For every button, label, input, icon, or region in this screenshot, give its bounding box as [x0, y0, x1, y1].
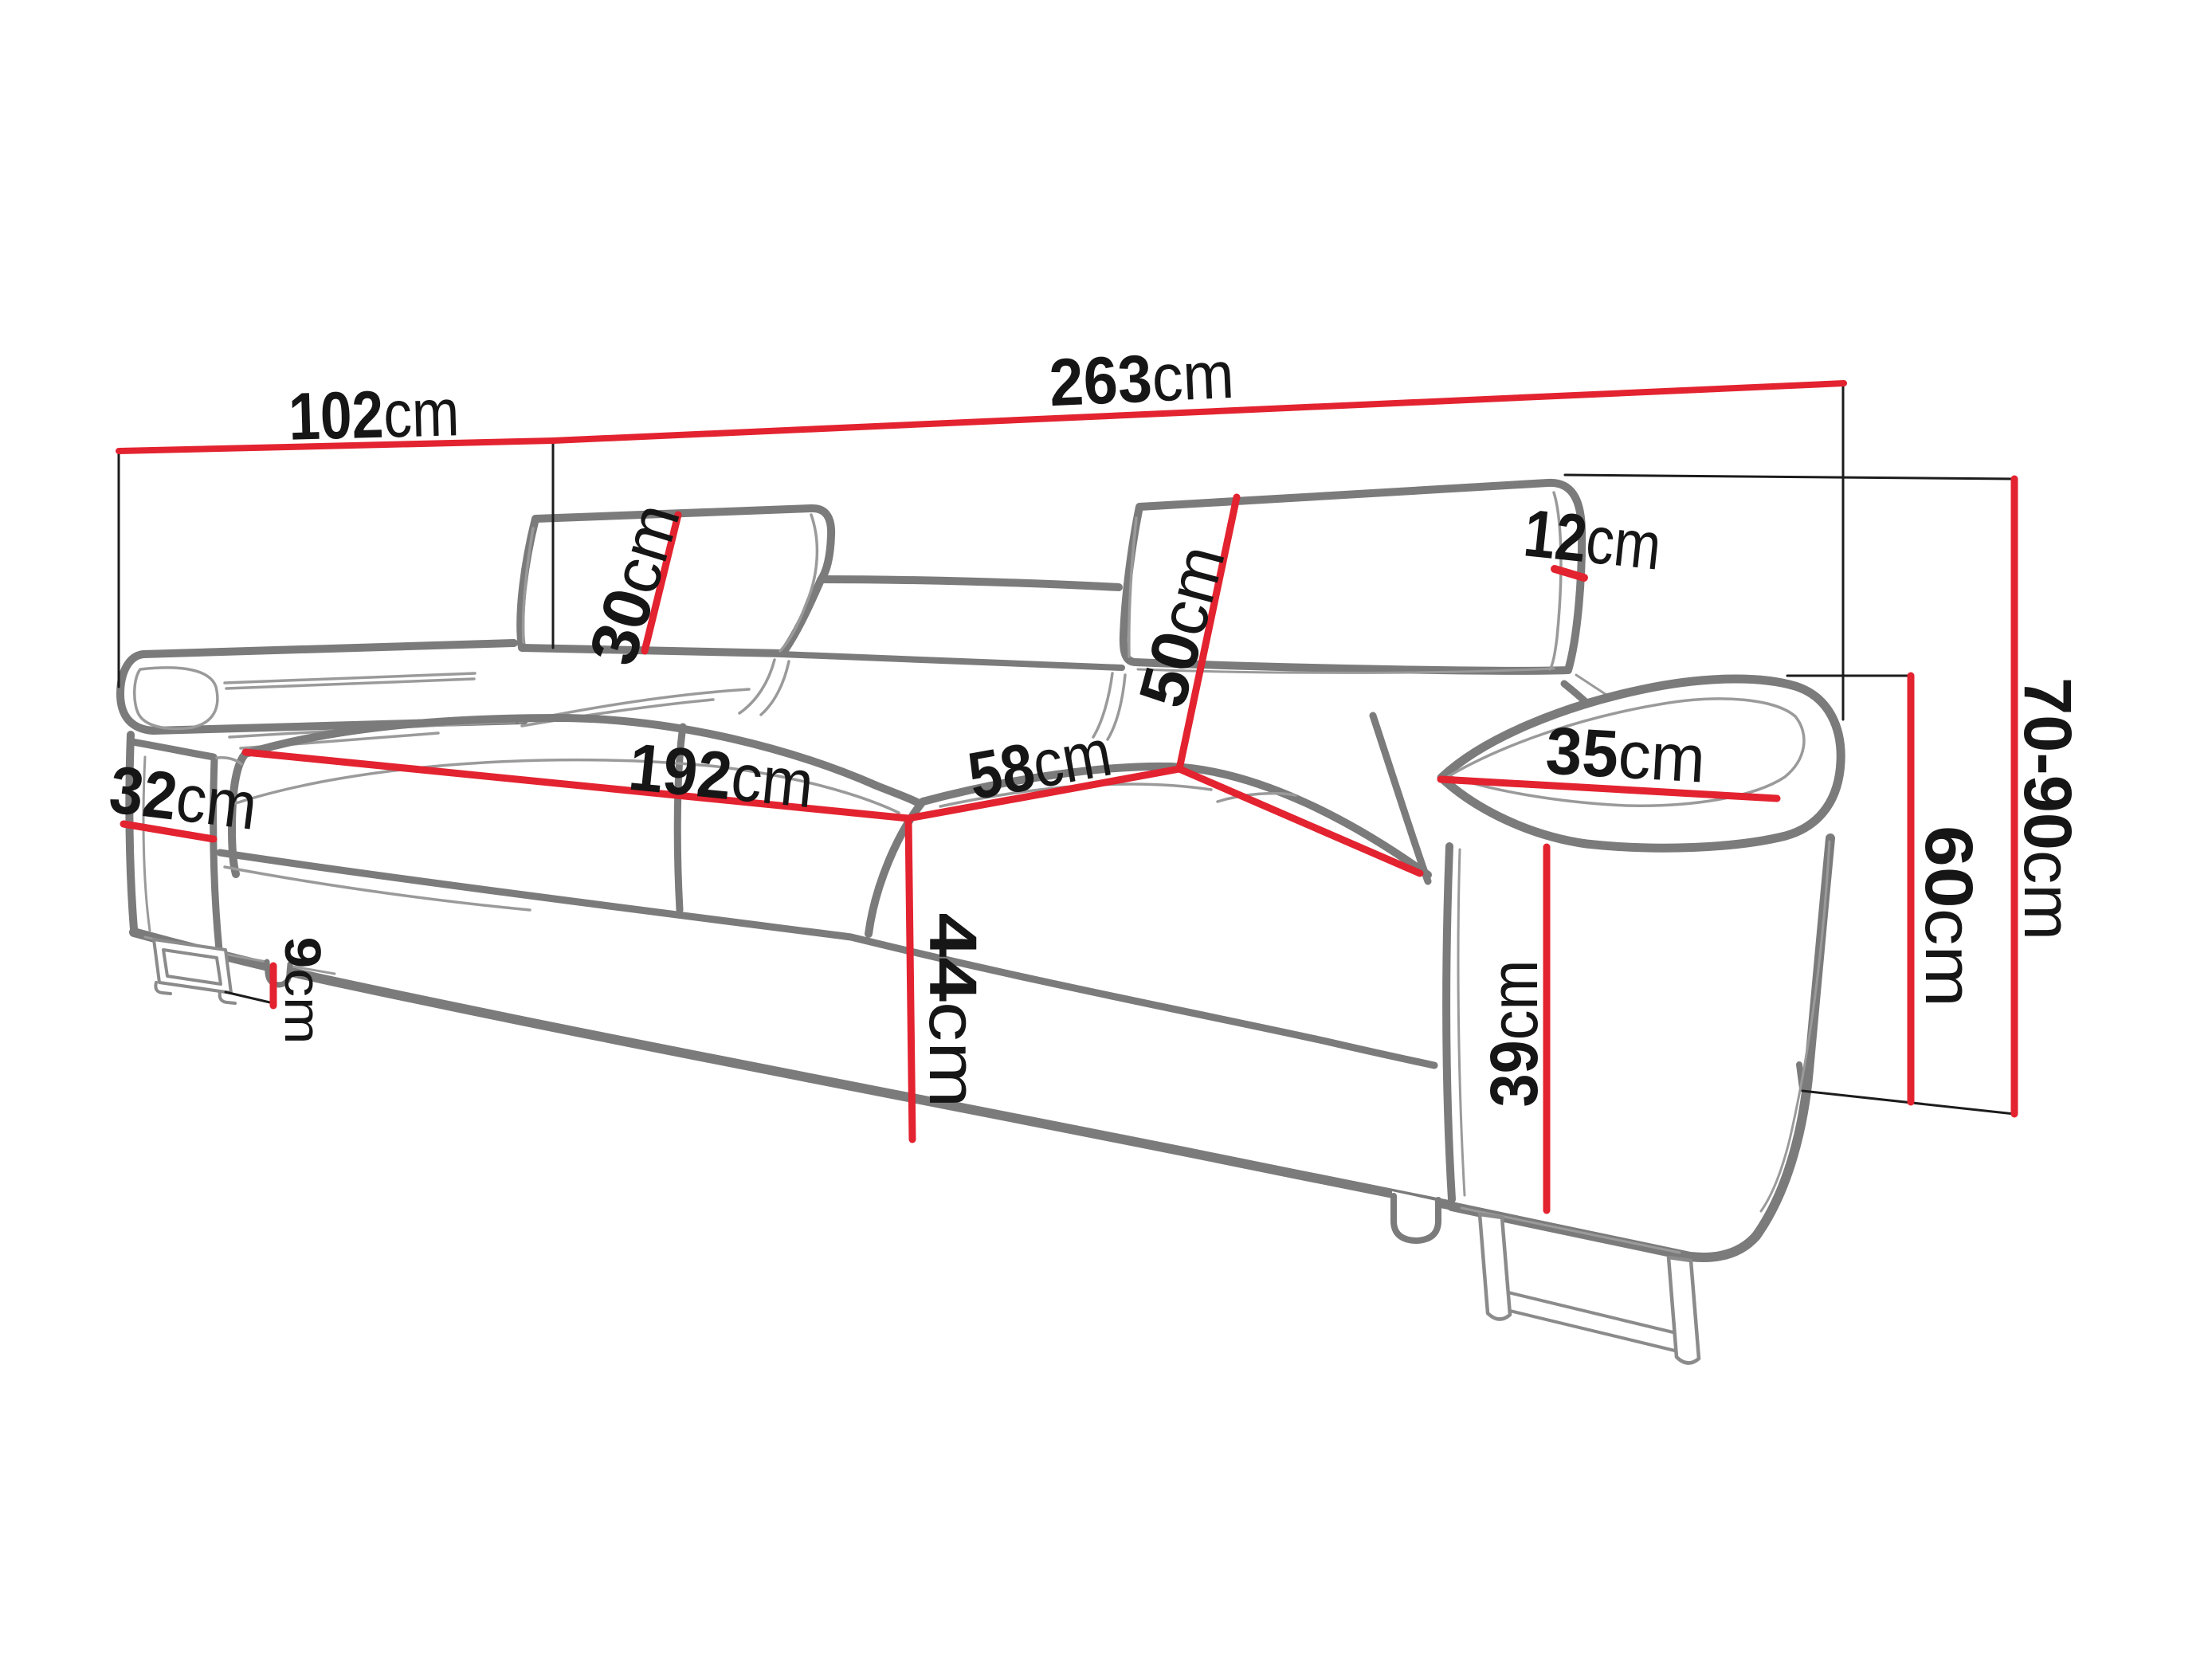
svg-text:263cm: 263cm	[1048, 337, 1236, 420]
svg-text:39cm: 39cm	[1477, 960, 1551, 1108]
svg-text:12cm: 12cm	[1520, 495, 1665, 583]
svg-text:44cm: 44cm	[916, 913, 990, 1108]
svg-text:102cm: 102cm	[288, 375, 460, 454]
svg-text:70-90cm: 70-90cm	[2010, 677, 2085, 940]
svg-text:35cm: 35cm	[1544, 712, 1708, 796]
svg-text:60cm: 60cm	[1912, 826, 1986, 1007]
svg-text:9cm: 9cm	[274, 937, 331, 1045]
